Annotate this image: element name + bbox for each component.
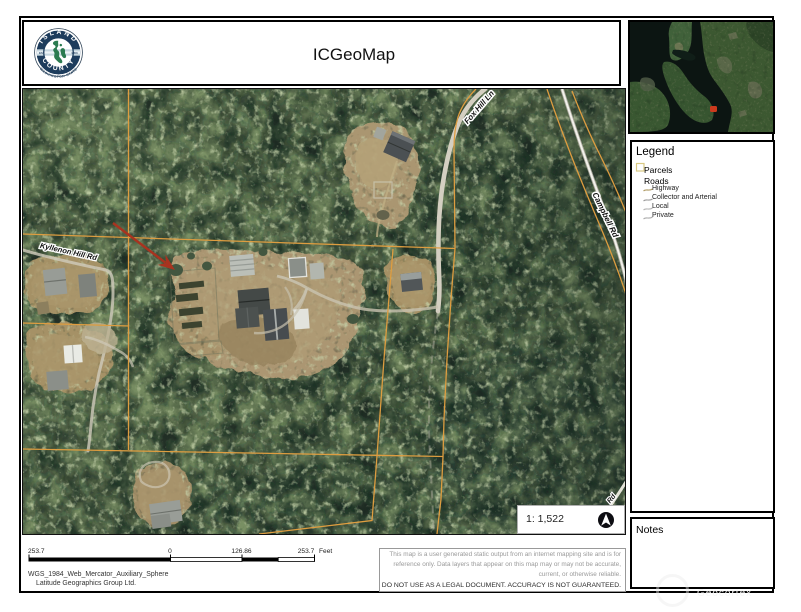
svg-text:Latitude Geographics Group Ltd: Latitude Geographics Group Ltd. (36, 580, 136, 587)
svg-text:WGS_1984_Web_Mercator_Auxiliar: WGS_1984_Web_Mercator_Auxiliary_Sphere (28, 571, 169, 578)
svg-text:253.7: 253.7 (28, 548, 45, 555)
svg-text:0: 0 (168, 548, 172, 555)
svg-text:1853: 1853 (71, 51, 78, 55)
svg-text:126.86: 126.86 (231, 548, 252, 555)
svg-text:Feet: Feet (319, 548, 332, 555)
svg-text:253.7: 253.7 (298, 548, 315, 555)
